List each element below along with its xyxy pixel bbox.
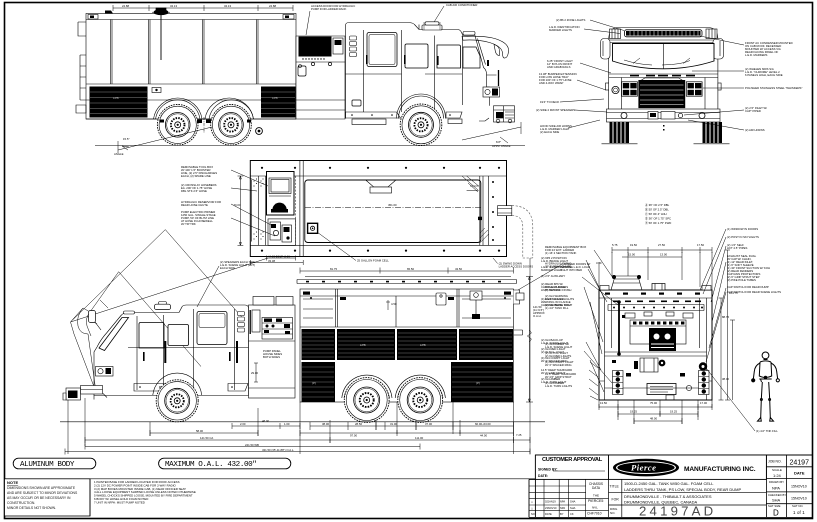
svg-text:5.75: 5.75: [612, 243, 618, 247]
svg-text:15NOV10: 15NOV10: [791, 497, 807, 501]
svg-text:24.88: 24.88: [269, 4, 276, 8]
svg-text:PUMP FOR LADDER RACK: PUMP FOR LADDER RACK: [311, 7, 347, 11]
svg-text:451.00: 451.00: [388, 203, 397, 207]
svg-text:NO: NO: [531, 512, 535, 516]
svg-text:15NOV10: 15NOV10: [791, 485, 807, 489]
svg-text:3.00: 3.00: [596, 261, 602, 265]
svg-text:CAP" PIPED: CAP" PIPED: [745, 109, 761, 113]
svg-text:EACH, (2) SPARE LINE: EACH, (2) SPARE LINE: [181, 174, 211, 178]
svg-text:2.00: 2.00: [240, 422, 246, 426]
svg-text:88.75: 88.75: [722, 315, 729, 319]
svg-text:LADDER ACCESS DOORS: LADDER ACCESS DOORS: [499, 265, 534, 269]
svg-text:LPB: LPB: [272, 96, 278, 100]
svg-text:29.00: 29.00: [251, 371, 258, 375]
svg-text:(3) PIKE POLE TUBES: (3) PIKE POLE TUBES: [727, 278, 756, 282]
svg-text:24197AD: 24197AD: [639, 504, 716, 519]
svg-text:LPB: LPB: [360, 343, 366, 347]
svg-text:1:24: 1:24: [773, 473, 782, 478]
svg-text:19.25: 19.25: [630, 410, 637, 414]
svg-text:25 GALLON FOAM CELL: 25 GALLON FOAM CELL: [357, 259, 389, 263]
svg-text:7 UNIT IN NFPA: MUST PUMP NOT: 7 UNIT IN NFPA: MUST PUMP NOTED: [94, 500, 145, 504]
svg-text:DRUMMONDVILLE - THIBAULT & ASS: DRUMMONDVILLE - THIBAULT & ASSOCIATES: [624, 494, 712, 499]
svg-text:75.00: 75.00: [650, 401, 657, 405]
svg-text:(1) 16' 2 SECTION TANK: (1) 16' 2 SECTION TANK: [545, 251, 576, 255]
svg-text:Ⓐ 36" OF 2.5" DBL: Ⓐ 36" OF 2.5" DBL: [645, 203, 670, 207]
svg-text:Ⓒ 50' OF 4" LDH: Ⓒ 50' OF 4" LDH: [645, 212, 667, 216]
svg-text:DRAWN BY: DRAWN BY: [769, 480, 784, 484]
svg-text:(P): (P): [312, 381, 316, 385]
svg-text:(1) 2.5" AUXILIARY: (1) 2.5" AUXILIARY: [541, 274, 565, 278]
svg-text:CAB AIR CONDITIONER: CAB AIR CONDITIONER: [446, 3, 477, 7]
svg-text:1500-D-2450 GAL. TANK W/50 GAL: 1500-D-2450 GAL. TANK W/50 GAL. FOAM CEL…: [624, 481, 714, 486]
svg-text:13.50: 13.50: [600, 401, 607, 405]
svg-text:48.00: 48.00: [650, 417, 657, 421]
svg-text:(2) SIDE 2 FRONT SPEAKERS: (2) SIDE 2 FRONT SPEAKERS: [536, 108, 575, 112]
svg-text:W/ TIP TRK: W/ TIP TRK: [181, 222, 196, 226]
svg-text:241.50 WB: 241.50 WB: [245, 443, 259, 447]
svg-text:Pierce: Pierce: [631, 463, 656, 473]
svg-text:34.13: 34.13: [224, 4, 231, 8]
svg-text:LADDERS THRU TANK, PS LOW, SPE: LADDERS THRU TANK, PS LOW, SPECIAL BODY,…: [624, 487, 741, 492]
svg-text:111.00: 111.00: [415, 436, 424, 440]
svg-text:JOB NO.: JOB NO.: [768, 460, 782, 464]
svg-text:48.00: 48.00: [262, 419, 269, 423]
svg-text:BOTH SIDES: BOTH SIDES: [263, 355, 280, 359]
svg-text:AND ARE SUBJECT TO MINOR DEVIA: AND ARE SUBJECT TO MINOR DEVIATIONS: [7, 491, 78, 495]
svg-text:141.50 CA: 141.50 CA: [200, 436, 213, 440]
svg-text:NVL: NVL: [592, 506, 598, 510]
svg-text:(1) WINDOW IN DOORS: (1) WINDOW IN DOORS: [727, 227, 758, 231]
svg-text:DATA: DATA: [592, 486, 601, 490]
svg-text:W/ 3" SPACER RING: W/ 3" SPACER RING: [541, 359, 568, 363]
svg-text:PIERCE5: PIERCE5: [588, 499, 603, 503]
svg-text:431.50 (35'-11.88") O.A.L.: 431.50 (35'-11.88") O.A.L.: [262, 448, 294, 452]
svg-text:28.50: 28.50: [355, 422, 362, 426]
svg-text:W/ 3" SPACER RING: W/ 3" SPACER RING: [545, 363, 572, 367]
svg-text:REAR HOSE CHUTE: REAR HOSE CHUTE: [181, 203, 208, 207]
svg-text:19.25: 19.25: [670, 410, 677, 414]
svg-text:(2) B6 2 ZONE LIGHTS: (2) B6 2 ZONE LIGHTS: [556, 18, 586, 22]
svg-text:NO.: NO.: [610, 511, 616, 515]
svg-text:L.E.D. TURN LIGHTS: L.E.D. TURN LIGHTS: [545, 384, 572, 388]
svg-text:LIMIT SWITCH: LIMIT SWITCH: [541, 288, 560, 292]
svg-text:L.E.D. MARKERS: L.E.D. MARKERS: [745, 53, 768, 57]
svg-text:NPA: NPA: [772, 486, 780, 491]
svg-text:CHROME BEZEL TRIM: CHROME BEZEL TRIM: [541, 303, 571, 307]
svg-text:ALUMINUM BODY: ALUMINUM BODY: [20, 461, 75, 469]
svg-text:17.50: 17.50: [697, 243, 704, 247]
svg-text:Ⓔ 50' OF 1.75" FWD: Ⓔ 50' OF 1.75" FWD: [645, 221, 671, 225]
svg-text:15.5°: 15.5°: [123, 137, 130, 141]
svg-text:CK: CK: [570, 512, 574, 516]
svg-text:DATE: DATE: [545, 512, 552, 516]
svg-text:TITLE: TITLE: [610, 485, 620, 489]
svg-text:24.88: 24.88: [122, 4, 129, 8]
svg-text:DBL STK 2.5" HOSE: DBL STK 2.5" HOSE: [181, 189, 207, 193]
svg-text:SHA: SHA: [772, 498, 781, 503]
svg-text:(2) AIR HORNS: (2) AIR HORNS: [745, 128, 765, 132]
svg-text:AS MAY OCCUR OR BE NECESSARY I: AS MAY OCCUR OR BE NECESSARY IN: [7, 496, 71, 500]
svg-text:SCALE: SCALE: [772, 468, 782, 472]
svg-text:Ⓑ 50' OF 2.5" DBL: Ⓑ 50' OF 2.5" DBL: [645, 208, 669, 212]
svg-text:NOTE: NOTE: [7, 480, 18, 485]
svg-text:33.38: 33.38: [268, 259, 275, 263]
svg-text:34.13: 34.13: [170, 4, 177, 8]
svg-text:LPB: LPB: [420, 343, 426, 347]
svg-text:CONSTRUCTION.: CONSTRUCTION.: [7, 501, 35, 505]
svg-text:65.50: 65.50: [407, 267, 414, 271]
svg-text:44.00: 44.00: [480, 434, 487, 438]
svg-text:DATE:: DATE:: [538, 474, 548, 478]
svg-text:81.75: 81.75: [330, 267, 337, 271]
svg-text:15.00: 15.00: [628, 253, 635, 257]
svg-text:CAP SWITCH FOR REAR SCENE LIGH: CAP SWITCH FOR REAR SCENE LIGHTS: [727, 290, 781, 294]
svg-text:43.50: 43.50: [455, 267, 462, 271]
svg-text:MINOR DETAILS NOT SHOWN.: MINOR DETAILS NOT SHOWN.: [7, 506, 56, 510]
svg-text:Ⓓ 36" OF 1.75" SPC: Ⓓ 36" OF 1.75" SPC: [645, 217, 671, 221]
svg-text:APPR. ANGLE: APPR. ANGLE: [492, 144, 511, 148]
svg-text:SHA: SHA: [570, 500, 576, 504]
svg-text:4.50: 4.50: [391, 302, 397, 306]
svg-text:AND GRAB RAILS: AND GRAB RAILS: [547, 65, 571, 69]
svg-text:19'4" TO DECK: 19'4" TO DECK: [540, 100, 559, 104]
svg-text:LIFT 2.5" PIPES: LIFT 2.5" PIPES: [727, 246, 748, 250]
svg-text:D: D: [773, 509, 779, 518]
svg-text:L.E.D. BRAKE LIGHT: L.E.D. BRAKE LIGHT: [541, 259, 568, 263]
svg-text:CHF7010: CHF7010: [587, 512, 602, 516]
svg-text:SHT SIZE: SHT SIZE: [768, 504, 781, 508]
svg-text:CHECKED BY: CHECKED BY: [768, 493, 786, 497]
svg-text:SHT NO.: SHT NO.: [792, 504, 804, 508]
svg-text:FOR: FOR: [612, 498, 620, 502]
svg-text:38.00: 38.00: [322, 422, 329, 426]
svg-text:MARKER LIGHT: MARKER LIGHT: [541, 268, 562, 272]
svg-text:LPB: LPB: [113, 96, 119, 100]
svg-text:58.00: 58.00: [196, 429, 203, 433]
svg-text:6 PANELS HIGH, EACH SIDE: 6 PANELS HIGH, EACH SIDE: [745, 73, 783, 77]
svg-text:MANUFACTURING INC.: MANUFACTURING INC.: [684, 466, 756, 473]
svg-text:44.00 BOLT–2.69: 44.00 BOLT–2.69: [268, 255, 290, 259]
svg-text:(1) 4.0" TNK FILL: (1) 4.0" TNK FILL: [756, 429, 778, 433]
svg-text:POLISHED STAINLESS STEEL "WHIS: POLISHED STAINLESS STEEL "WHISKERS": [745, 86, 802, 90]
svg-text:NPA: NPA: [560, 500, 565, 504]
svg-text:(2) EACH SIDE: (2) EACH SIDE: [540, 130, 559, 134]
svg-text:W/ 4" GRIP STRUT: W/ 4" GRIP STRUT: [541, 371, 566, 375]
svg-text:60.00–63.00: 60.00–63.00: [475, 422, 491, 426]
svg-text:24197: 24197: [790, 460, 810, 467]
svg-text:NPA: NPA: [560, 506, 565, 510]
svg-text:DIMENSIONS SHOWN ARE APPROXIMA: DIMENSIONS SHOWN ARE APPROXIMATE: [7, 486, 76, 490]
svg-text:CUSTOMER APPROVAL: CUSTOMER APPROVAL: [542, 457, 603, 463]
svg-text:23NOV10: 23NOV10: [545, 506, 557, 510]
svg-text:ANGLE: ANGLE: [114, 152, 124, 156]
svg-text:AND 4-WAY WRAP: AND 4-WAY WRAP: [539, 81, 563, 85]
svg-text:27.50: 27.50: [658, 243, 665, 247]
svg-text:THE: THE: [593, 494, 599, 498]
svg-text:(2) W-TO-L LIGHT: (2) W-TO-L LIGHT: [541, 350, 564, 354]
svg-text:97.00: 97.00: [350, 434, 357, 438]
svg-text:MARKER LIGHTS: MARKER LIGHTS: [549, 28, 572, 32]
svg-text:17.00: 17.00: [700, 401, 707, 405]
svg-text:EACH SIDE: EACH SIDE: [220, 266, 235, 270]
svg-text:1.00: 1.00: [284, 422, 290, 426]
svg-text:MAXIMUM O.A.L. 432.00": MAXIMUM O.A.L. 432.00": [165, 461, 256, 469]
svg-text:L.E.D. TURN LIGHT: L.E.D. TURN LIGHT: [541, 380, 567, 384]
svg-text:(2) POST IN SKYLIGHTS: (2) POST IN SKYLIGHTS: [727, 235, 759, 239]
svg-text:38.00: 38.00: [722, 377, 729, 381]
svg-text:31.00: 31.00: [390, 422, 397, 426]
svg-text:1 of 1: 1 of 1: [793, 510, 805, 515]
svg-text:19.50: 19.50: [630, 243, 637, 247]
svg-text:O.A.H.: O.A.H.: [533, 314, 542, 318]
svg-text:(P): (P): [476, 381, 480, 385]
svg-text:BY: BY: [560, 512, 564, 516]
svg-text:7.25: 7.25: [516, 433, 522, 437]
svg-text:L.E.D. SCENE LIGHT: L.E.D. SCENE LIGHT: [541, 341, 568, 345]
svg-text:02JAN19: 02JAN19: [545, 500, 556, 504]
svg-text:70.00: 70.00: [234, 203, 241, 207]
svg-text:DATE: DATE: [794, 471, 805, 476]
svg-text:CAP SWITCH FOR REAR DUMP: CAP SWITCH FOR REAR DUMP: [727, 285, 769, 289]
svg-text:13.00: 13.00: [660, 253, 667, 257]
svg-text:SHA: SHA: [570, 506, 576, 510]
svg-text:37.00: 37.00: [425, 422, 432, 426]
